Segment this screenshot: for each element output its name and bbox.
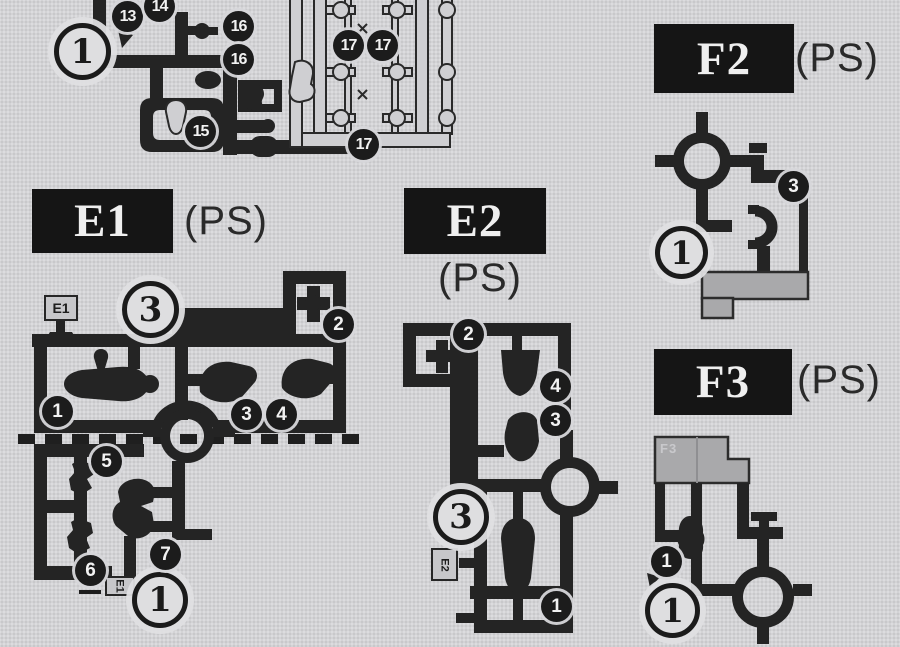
runner-e1-sprue bbox=[32, 271, 346, 433]
part-number-badge: 13 bbox=[112, 1, 143, 32]
part-shape bbox=[166, 100, 186, 134]
gate-number-e1-top: 3 bbox=[122, 281, 179, 338]
part-number-badge: 17 bbox=[348, 129, 379, 160]
gate-arrow bbox=[118, 30, 133, 48]
scanned-instruction-page: E1 (PS) E2 (PS) F2 (PS) F3 (PS) E1 E1 E2… bbox=[0, 0, 900, 647]
gate-number-e2: 3 bbox=[433, 489, 489, 545]
gate-number-e1-bottom: 1 bbox=[132, 572, 188, 628]
part-number-badge: 7 bbox=[150, 539, 181, 570]
runner-tag-text: E2 bbox=[439, 558, 451, 571]
material-label-e2: (PS) bbox=[438, 256, 522, 301]
part-number-badge: 1 bbox=[541, 591, 572, 622]
part-number-badge: 3 bbox=[778, 171, 809, 202]
gate-number-f2: 1 bbox=[655, 226, 708, 279]
part-number-badge: 1 bbox=[651, 546, 682, 577]
badge-six-underline bbox=[79, 590, 101, 594]
runner-tag-text: E1 bbox=[114, 579, 126, 592]
runner-f2-sprue bbox=[655, 112, 808, 318]
part-number-badge: 2 bbox=[453, 319, 484, 350]
part-number-badge: 2 bbox=[323, 309, 354, 340]
material-label-f3: (PS) bbox=[797, 358, 881, 403]
part-number-badge: 16 bbox=[223, 44, 254, 75]
runner-tag-e1-bottom: E1 bbox=[105, 576, 135, 596]
runner-label-f2: F2 bbox=[654, 24, 794, 93]
material-label-e1: (PS) bbox=[184, 199, 268, 244]
runner-e2-sprue bbox=[403, 323, 618, 633]
runner-label-e2-text: E2 bbox=[447, 194, 504, 248]
part-number-badge: 16 bbox=[223, 11, 254, 42]
part-number-badge: 17 bbox=[333, 30, 364, 61]
part-number-badge: 3 bbox=[231, 399, 262, 430]
runner-tag-text: E1 bbox=[52, 300, 69, 316]
runner-label-f2-text: F2 bbox=[697, 32, 751, 86]
part-number-badge: 4 bbox=[266, 399, 297, 430]
part-number-badge: 5 bbox=[91, 446, 122, 477]
part-number-badge: 17 bbox=[367, 30, 398, 61]
runner-label-f3-text: F3 bbox=[696, 355, 750, 409]
runner-tag-f3-block: F3 bbox=[660, 441, 677, 456]
runner-tag-e1-top: E1 bbox=[44, 295, 78, 321]
part-number-badge: 6 bbox=[75, 555, 106, 586]
part-number-badge: 3 bbox=[540, 405, 571, 436]
runner-d-lattice bbox=[289, 0, 455, 147]
runner-label-e2: E2 bbox=[404, 188, 546, 254]
gate-number-f3: 1 bbox=[645, 583, 700, 638]
runner-label-e1-text: E1 bbox=[74, 194, 131, 248]
runner-label-f3: F3 bbox=[654, 349, 792, 415]
runner-label-e1: E1 bbox=[32, 189, 173, 253]
part-number-badge: 15 bbox=[185, 116, 216, 147]
part-number-badge: 4 bbox=[540, 371, 571, 402]
gate-number-d: 1 bbox=[54, 23, 111, 80]
part-number-badge: 1 bbox=[42, 396, 73, 427]
material-label-f2: (PS) bbox=[795, 36, 879, 81]
runner-tag-e2: E2 bbox=[431, 548, 458, 581]
